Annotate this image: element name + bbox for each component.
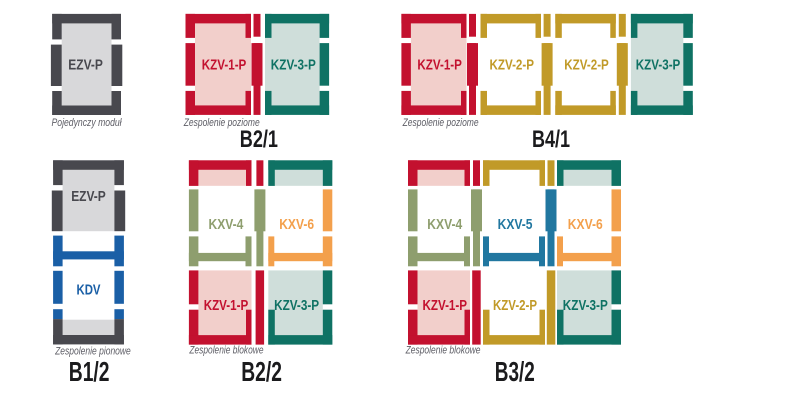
svg-text:KZV-1-P: KZV-1-P [204, 297, 249, 314]
svg-text:KZV-3-P: KZV-3-P [636, 57, 681, 74]
svg-text:KXV-6: KXV-6 [568, 216, 603, 233]
svg-text:B1/2: B1/2 [69, 356, 110, 387]
svg-text:KXV-4: KXV-4 [427, 216, 462, 233]
svg-text:EZV-P: EZV-P [71, 188, 106, 205]
svg-text:B2/1: B2/1 [240, 126, 278, 153]
svg-text:KZV-2-P: KZV-2-P [490, 57, 535, 74]
svg-text:KZV-1-P: KZV-1-P [417, 57, 462, 74]
svg-text:B3/2: B3/2 [495, 356, 535, 387]
svg-text:KXV-4: KXV-4 [209, 216, 244, 233]
svg-text:EZV-P: EZV-P [68, 56, 103, 73]
svg-text:KZV-3-P: KZV-3-P [274, 297, 319, 314]
svg-text:KZV-2-P: KZV-2-P [493, 297, 537, 314]
svg-text:KDV: KDV [77, 281, 101, 298]
svg-text:Zespolenie poziome: Zespolenie poziome [402, 117, 479, 129]
svg-text:Zespolenie blokowe: Zespolenie blokowe [189, 345, 264, 357]
svg-text:KZV-1-P: KZV-1-P [202, 57, 247, 74]
svg-text:KXV-5: KXV-5 [498, 216, 533, 233]
svg-text:Pojedynczy moduł: Pojedynczy moduł [52, 117, 123, 129]
svg-text:B4/1: B4/1 [532, 126, 570, 153]
svg-text:KZV-3-P: KZV-3-P [271, 57, 316, 74]
svg-text:KXV-6: KXV-6 [279, 216, 314, 233]
svg-text:KZV-1-P: KZV-1-P [423, 297, 468, 314]
svg-text:KZV-2-P: KZV-2-P [564, 57, 609, 74]
svg-text:Zespolenie blokowe: Zespolenie blokowe [405, 345, 481, 357]
svg-text:KZV-3-P: KZV-3-P [563, 297, 608, 314]
svg-text:B2/2: B2/2 [241, 356, 282, 387]
